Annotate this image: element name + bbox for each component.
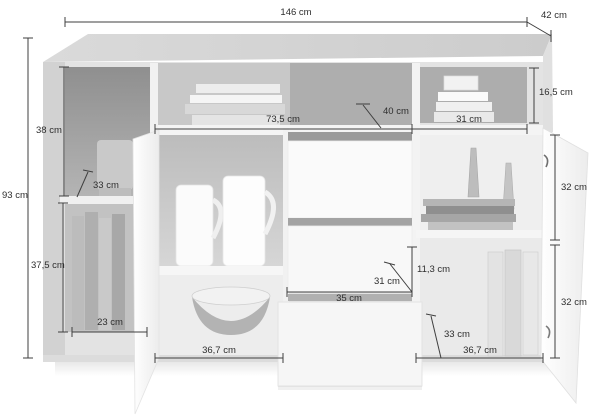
dim-label-right-door-width: 36,7 cm bbox=[463, 346, 497, 356]
open-drawer bbox=[278, 302, 422, 390]
dim-label-right-top-width: 31 cm bbox=[456, 115, 482, 125]
right-door-open bbox=[541, 128, 588, 403]
dim-label-shelf-depth: 40 cm bbox=[383, 107, 409, 117]
dim-label-depth: 42 cm bbox=[541, 11, 567, 21]
dim-label-right-lower-height: 32 cm bbox=[561, 298, 587, 308]
standing-books bbox=[488, 250, 538, 356]
drawer-handle-strip-1 bbox=[288, 132, 412, 141]
dim-label-left-lower-width: 23 cm bbox=[97, 318, 123, 328]
cabinet-top-face bbox=[43, 34, 552, 62]
dim-label-right-upper-height: 32 cm bbox=[561, 183, 587, 193]
books-stack-middle-right bbox=[421, 199, 516, 230]
jug-shelf-board bbox=[155, 266, 287, 275]
dimension-diagram: 146 cm 42 cm 93 cm 38 cm 33 cm 73,5 cm 4… bbox=[0, 0, 600, 420]
drawer-front-1 bbox=[288, 141, 412, 218]
right-lower-compartment bbox=[420, 238, 543, 356]
dim-label-left-depth: 33 cm bbox=[93, 181, 119, 191]
drawer-handle-strip-2 bbox=[288, 218, 412, 226]
right-middle-compartment bbox=[416, 135, 543, 238]
dim-label-total-height: 93 cm bbox=[2, 191, 28, 201]
small-box bbox=[444, 76, 478, 90]
dim-label-right-top-height: 16,5 cm bbox=[539, 88, 573, 98]
right-shelf-board bbox=[416, 230, 543, 238]
dim-label-drawer-width: 35 cm bbox=[336, 294, 362, 304]
dim-label-total-width: 146 cm bbox=[280, 8, 311, 18]
dim-line-total-width bbox=[65, 17, 527, 27]
dim-label-left-upper-height: 38 cm bbox=[36, 126, 62, 136]
dim-label-drawer-front-height: 11,3 cm bbox=[417, 265, 450, 275]
dim-label-left-lower-height: 37,5 cm bbox=[31, 261, 65, 271]
sideboard-illustration bbox=[0, 0, 600, 420]
dim-label-drawer-inner-width: 31 cm bbox=[374, 277, 400, 287]
dim-label-middle-width: 73,5 cm bbox=[266, 115, 300, 125]
dim-label-left-door-width: 36,7 cm bbox=[202, 346, 236, 356]
dim-label-right-lower-depth: 33 cm bbox=[444, 330, 470, 340]
middle-left-compartment bbox=[155, 135, 287, 355]
